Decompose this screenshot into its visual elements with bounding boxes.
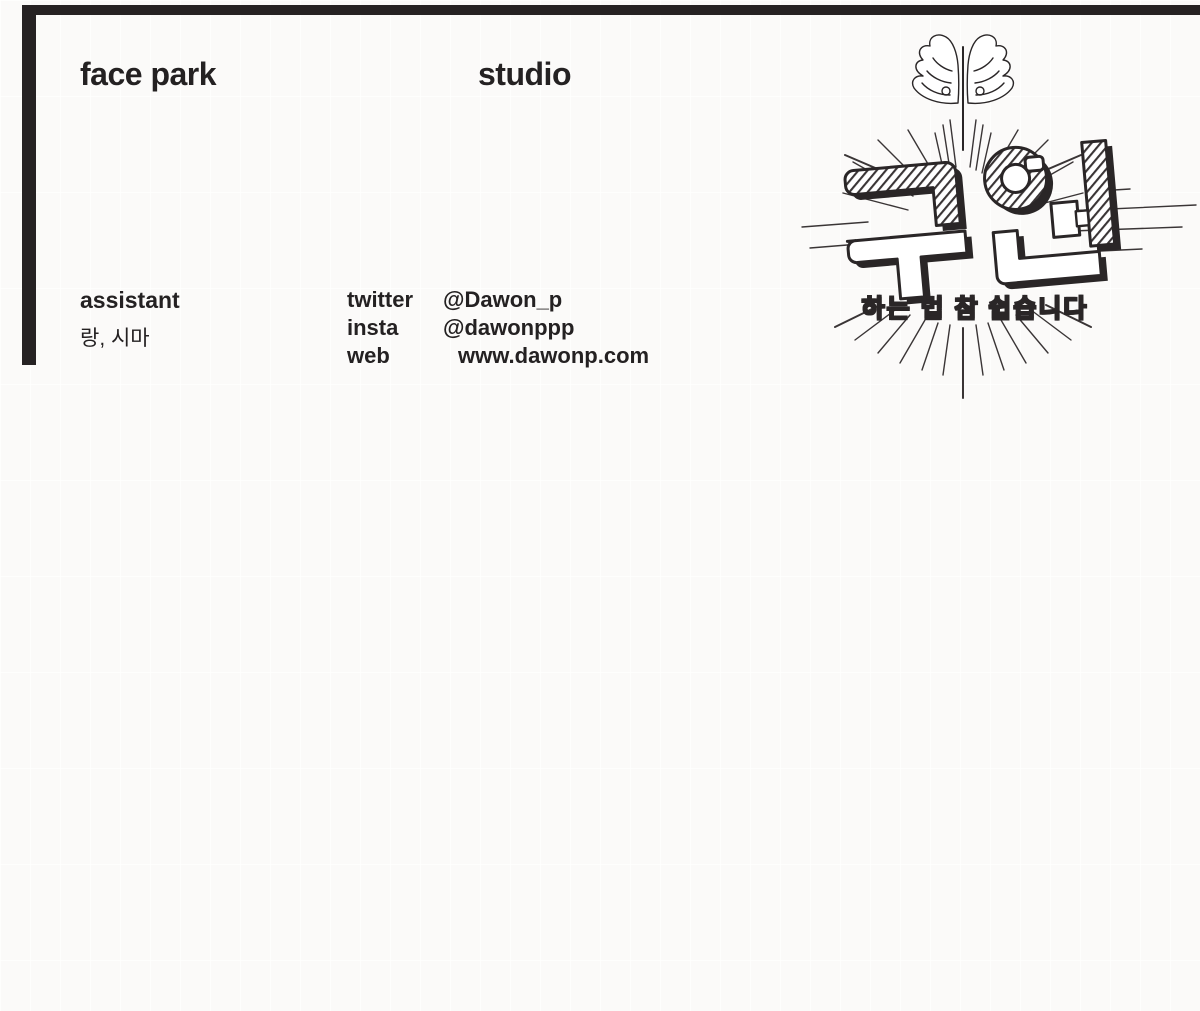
logo-title-art (841, 139, 1125, 309)
logo-subtitle: 하는 법 참 쉽습니다 (830, 289, 1120, 325)
insta-handle: @dawonppp (443, 314, 574, 342)
series-logo: 하는 법 참 쉽습니다 (800, 25, 1200, 405)
contact-row-web: webwww.dawonp.com (347, 342, 649, 370)
web-url: www.dawonp.com (443, 342, 649, 370)
contact-row-insta: insta@dawonppp (347, 314, 649, 342)
assistant-label: assistant (80, 287, 180, 314)
contact-block: twitter@Dawon_p insta@dawonppp webwww.da… (347, 286, 649, 370)
credits-page: face park studio assistant 랑, 시마 twitter… (0, 0, 1200, 1011)
wings-icon (913, 35, 1014, 150)
assistant-names: 랑, 시마 (80, 322, 150, 352)
studio-name-primary: face park (80, 56, 216, 93)
frame-top-border (22, 5, 1200, 15)
left-wing-icon (913, 35, 959, 103)
series-logo-art (800, 25, 1200, 405)
twitter-handle: @Dawon_p (443, 286, 562, 314)
right-wing-icon (967, 35, 1013, 103)
contact-row-twitter: twitter@Dawon_p (347, 286, 649, 314)
title-faces (841, 139, 1118, 303)
web-label: web (347, 342, 443, 370)
twitter-label: twitter (347, 286, 443, 314)
insta-label: insta (347, 314, 443, 342)
frame-left-border (22, 5, 36, 365)
studio-name-secondary: studio (478, 56, 571, 93)
